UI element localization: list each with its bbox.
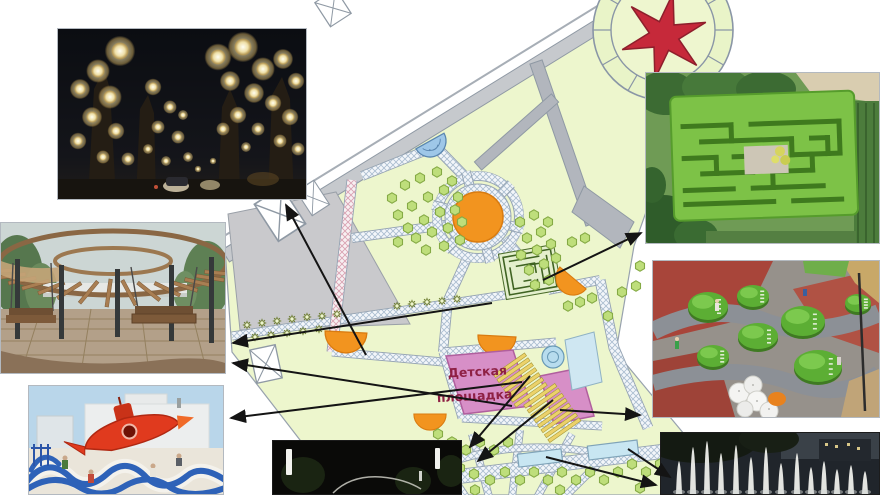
playground-label-line1: Детская (447, 362, 507, 380)
photo-ship-playground (28, 385, 224, 495)
photo-pergola-swings (0, 222, 226, 374)
photo-dry-fountain (660, 432, 880, 495)
photo-night-light-installation (272, 440, 462, 495)
slide-canvas: Детская площадка (0, 0, 880, 495)
blue-fence (31, 444, 51, 466)
photo-hedge-maze (645, 72, 880, 244)
photo-night-lights-alley (57, 28, 307, 200)
photo-hills-playground (652, 260, 880, 418)
maze-hedges (670, 91, 858, 221)
